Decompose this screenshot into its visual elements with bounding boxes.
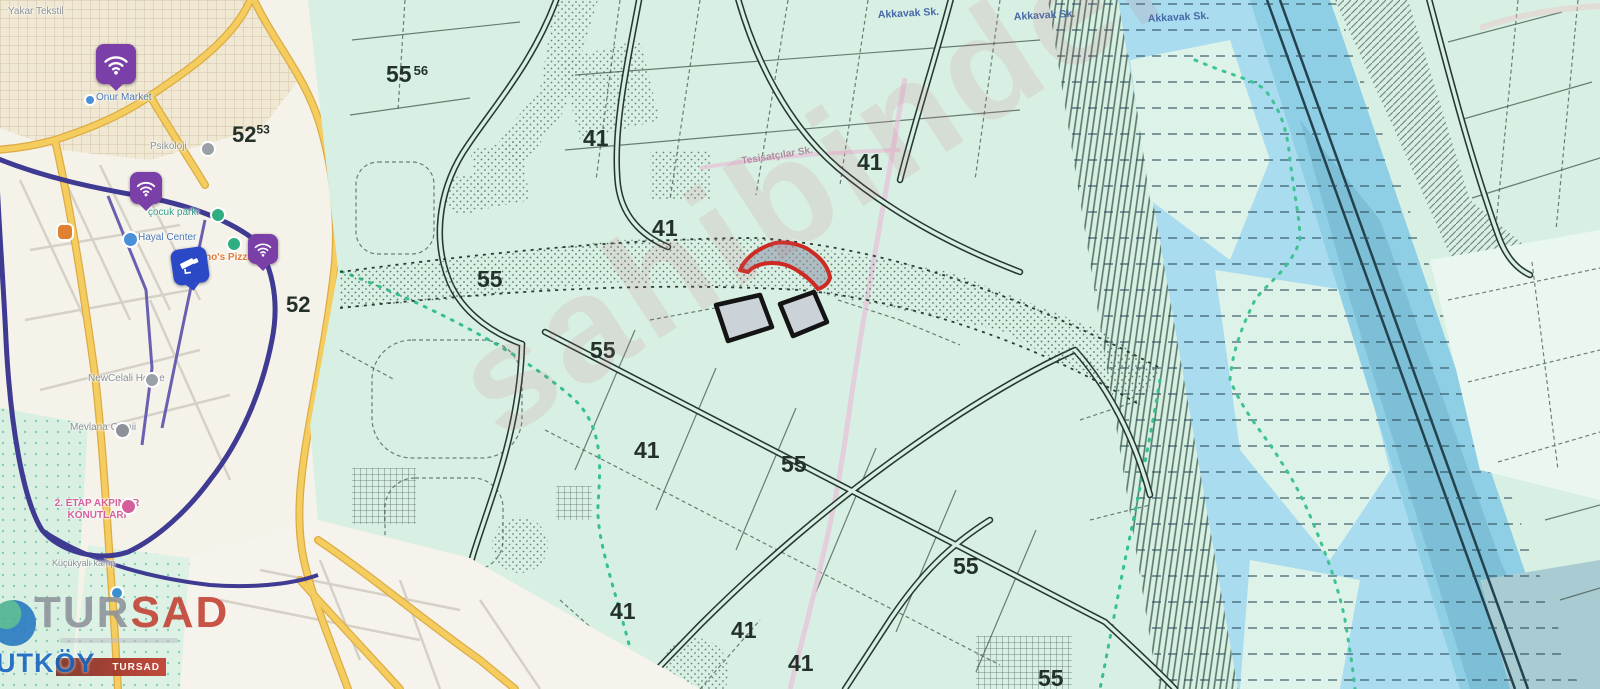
poi-marker-icon[interactable] bbox=[122, 500, 135, 513]
poi-marker-icon[interactable] bbox=[124, 233, 137, 246]
poi-marker-icon[interactable] bbox=[116, 424, 129, 437]
tursad-logo-mark-icon bbox=[0, 600, 36, 646]
poi-marker-icon[interactable] bbox=[212, 209, 224, 221]
poi-label: Onur Market bbox=[96, 92, 152, 104]
wifi-hotspot-pin-icon[interactable] bbox=[130, 172, 162, 204]
poi-marker-icon[interactable] bbox=[86, 96, 94, 104]
poi-marker-icon[interactable] bbox=[202, 143, 214, 155]
district-label: UTKÖY bbox=[0, 648, 96, 679]
svg-text:41: 41 bbox=[857, 149, 883, 175]
svg-text:41: 41 bbox=[788, 650, 814, 676]
svg-text:55: 55 bbox=[1038, 665, 1064, 689]
svg-text:41: 41 bbox=[731, 617, 757, 643]
wifi-hotspot-pin-icon[interactable] bbox=[248, 234, 278, 264]
poi-label: Psikoloji bbox=[150, 141, 187, 153]
svg-text:41: 41 bbox=[610, 598, 636, 624]
svg-text:55: 55 bbox=[477, 266, 503, 292]
tursad-tagline-bar bbox=[60, 638, 178, 643]
poi-marker-icon[interactable] bbox=[146, 374, 158, 386]
grid-label: 5253 bbox=[232, 122, 270, 148]
svg-text:55: 55 bbox=[590, 337, 616, 363]
poi-label: çocuk parkı bbox=[148, 207, 199, 219]
svg-text:41: 41 bbox=[583, 125, 609, 151]
poi-marker-icon[interactable] bbox=[228, 238, 240, 250]
tursad-logo: TURSAD bbox=[34, 588, 229, 638]
svg-text:41: 41 bbox=[652, 215, 678, 241]
svg-text:55: 55 bbox=[953, 553, 979, 579]
branding-block: TURSAD TURSAD UTKÖY bbox=[0, 560, 340, 689]
cctv-camera-pin-icon[interactable] bbox=[170, 246, 211, 287]
poi-label: 2. ETAP AKPINAR KONUTLARI bbox=[42, 498, 152, 521]
poi-marker-icon[interactable] bbox=[58, 225, 72, 239]
poi-label: Yakar Tekstil bbox=[8, 6, 64, 18]
poi-label: Hayal Center bbox=[138, 232, 196, 244]
map-screenshot: 5556 55 55 41 41 41 41 55 55 41 41 41 55… bbox=[0, 0, 1600, 689]
svg-text:55: 55 bbox=[781, 451, 807, 477]
grid-label: 52 bbox=[286, 292, 310, 318]
svg-text:41: 41 bbox=[634, 437, 660, 463]
wifi-hotspot-pin-icon[interactable] bbox=[96, 44, 136, 84]
